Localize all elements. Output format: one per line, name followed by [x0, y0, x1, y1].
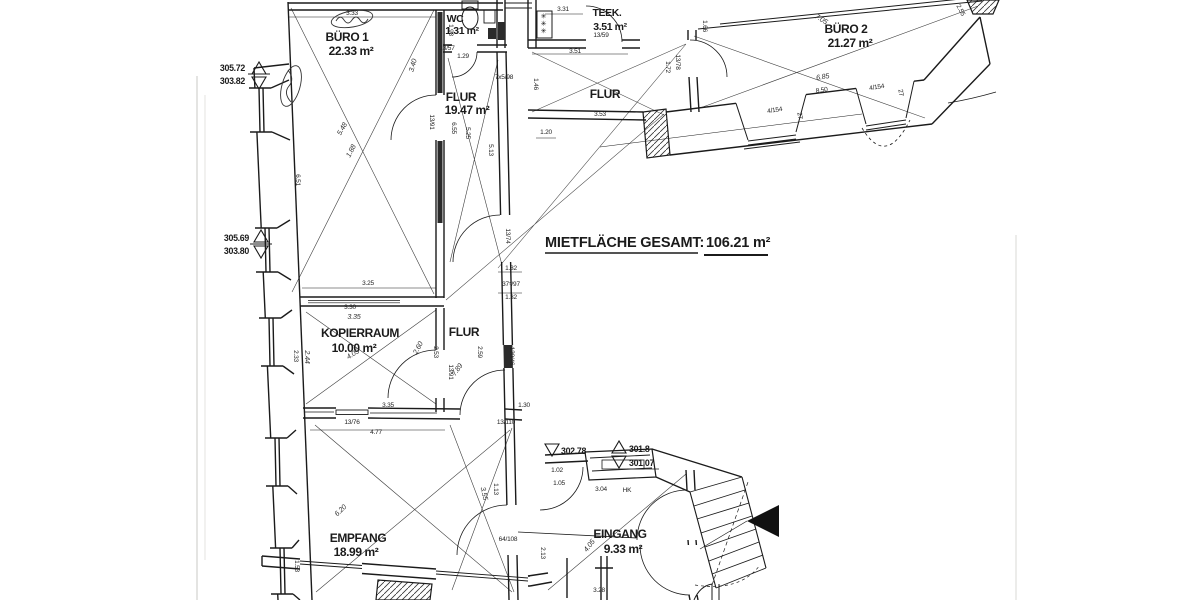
- dimension-label: 3.25: [362, 280, 374, 287]
- elevation-label: 305.69: [224, 233, 250, 243]
- dimension-label: 4/154: [869, 83, 886, 92]
- room-area-flur1: 19.47 m²: [445, 103, 490, 117]
- dimension-label: 13/91: [447, 364, 454, 380]
- dimension-label: 13/74: [504, 228, 511, 244]
- dimension-label: 6.55: [450, 122, 457, 134]
- dimension-label: HK: [623, 487, 632, 494]
- dimension-label: 3.33: [346, 10, 358, 17]
- dimension-label: 5.13: [487, 144, 494, 156]
- dimension-label: 3.53: [594, 111, 606, 118]
- dimension-label: 27: [896, 89, 904, 98]
- dimension-label: 13/59: [593, 32, 609, 39]
- dimension-label: 1.02: [551, 467, 563, 474]
- dimension-label: 1.72: [664, 61, 671, 73]
- room-label-eingang: EINGANG: [593, 527, 646, 541]
- room-area-eingang: 9.33 m²: [604, 542, 643, 556]
- dimension-label: 3.28: [593, 587, 605, 594]
- room-label-flur1: FLUR: [446, 90, 477, 104]
- total-area-title: MIETFLÄCHE GESAMT: 106.21 m²: [545, 234, 771, 255]
- dimension-label: 7x5/98: [495, 74, 514, 81]
- dimension-label: 5.48: [335, 121, 349, 137]
- room-labels: BÜRO 1 22.33 m² WC 1.31 m² FLUR 19.47 m²…: [321, 7, 873, 559]
- dimension-label: 2.59: [476, 346, 483, 358]
- dimension-label: 13/76: [344, 419, 360, 426]
- dimension-label: 1.32: [505, 294, 517, 301]
- room-area-buero2: 21.27 m²: [828, 36, 873, 50]
- scan-artifacts: [197, 76, 1016, 600]
- room-label-flur2: FLUR: [590, 87, 621, 101]
- total-area-value: 106.21 m²: [706, 235, 771, 251]
- dimension-label: 3.04: [595, 486, 607, 493]
- total-area-label: MIETFLÄCHE GESAMT:: [545, 234, 704, 251]
- room-label-flur3: FLUR: [449, 325, 480, 339]
- floor-plan-drawing: ✳✳✳ BÜRO 1 22.33 m² WC 1.31 m² FLUR 19.4…: [0, 0, 1200, 600]
- dimension-label: 3.31: [557, 6, 569, 13]
- dimension-label: 2.60: [410, 340, 425, 357]
- dimension-label: 1.30: [518, 402, 530, 409]
- dimension-label: 13/78: [674, 54, 681, 70]
- dimension-label: 2.55: [954, 3, 966, 17]
- dimension-label: 1.20: [540, 129, 552, 136]
- dimension-label: 1.13: [492, 483, 499, 495]
- dimension-label: 13/57: [439, 45, 455, 52]
- dimension-label: 64/108: [499, 536, 518, 543]
- dimension-label: 3.30: [344, 304, 356, 311]
- dimension-label: 6.20: [332, 502, 348, 518]
- elevation-label: 303.82: [220, 76, 246, 86]
- dimension-label: 5.25: [464, 127, 471, 139]
- dimension-label: 13/91: [428, 114, 435, 130]
- dimension-label: 1.53: [293, 560, 300, 572]
- dimension-label: 1.32: [505, 265, 517, 272]
- dimension-label: 3.40: [407, 58, 419, 73]
- dimension-label: 2.33: [292, 350, 299, 362]
- room-label-buero2: BÜRO 2: [825, 21, 869, 36]
- room-label-buero1: BÜRO 1: [326, 29, 370, 44]
- dimension-label: 27: [795, 112, 803, 121]
- dimension-label: 2.44: [303, 349, 312, 363]
- elevation-label: 302.78: [561, 446, 587, 456]
- dimension-label: 37⁵/97: [502, 281, 520, 288]
- dimension-label: 6.85: [815, 71, 831, 82]
- room-area-empfang: 18.99 m²: [334, 545, 379, 559]
- dimension-label: 1.93: [447, 24, 454, 36]
- elevation-label: 303.80: [224, 246, 250, 256]
- dimension-label: 1.05: [553, 480, 565, 487]
- dimension-label: 1.66: [701, 20, 708, 32]
- floor-plan-scan: ✳✳✳ BÜRO 1 22.33 m² WC 1.31 m² FLUR 19.4…: [0, 0, 1200, 600]
- dimension-label: 1.29: [457, 53, 469, 60]
- dimension-label: 2.53: [432, 346, 439, 358]
- elevation-label: 301.07: [629, 458, 655, 468]
- dimension-label: 3.35: [382, 402, 394, 409]
- dimension-label: 8.50: [815, 86, 828, 95]
- dimension-label: 4.77: [370, 429, 382, 436]
- dimension-label: 2.13: [539, 547, 546, 559]
- direction-arrow-icon: [747, 505, 779, 537]
- dimension-label: 4/154: [767, 106, 784, 115]
- dimension-label: 1.88: [344, 143, 358, 159]
- elevation-label: 305.72: [220, 63, 246, 73]
- dimension-label: 3.55: [479, 486, 491, 502]
- dimension-label: 13/110: [497, 419, 516, 426]
- dimension-label: 1.46: [532, 78, 539, 90]
- dimension-layer: 3.333.3113/571.291.9313/593.513.531.201.…: [292, 3, 966, 594]
- room-label-kopierraum: KOPIERRAUM: [321, 326, 399, 340]
- room-label-empfang: EMPFANG: [330, 531, 387, 545]
- elevation-text-layer: 305.72303.82305.69303.80302.78301.8301.0…: [220, 63, 655, 468]
- elevation-label: 301.8: [629, 444, 650, 454]
- dimension-label: 3.51: [569, 48, 581, 55]
- room-label-teek: TEEK.: [593, 7, 622, 19]
- dimension-label: 3.35: [347, 312, 361, 321]
- room-area-buero1: 22.33 m²: [329, 44, 374, 58]
- dimension-label: 6.51: [294, 174, 301, 186]
- stove-icon: ✳✳✳: [539, 13, 547, 35]
- dimension-label: 120/46: [508, 347, 515, 366]
